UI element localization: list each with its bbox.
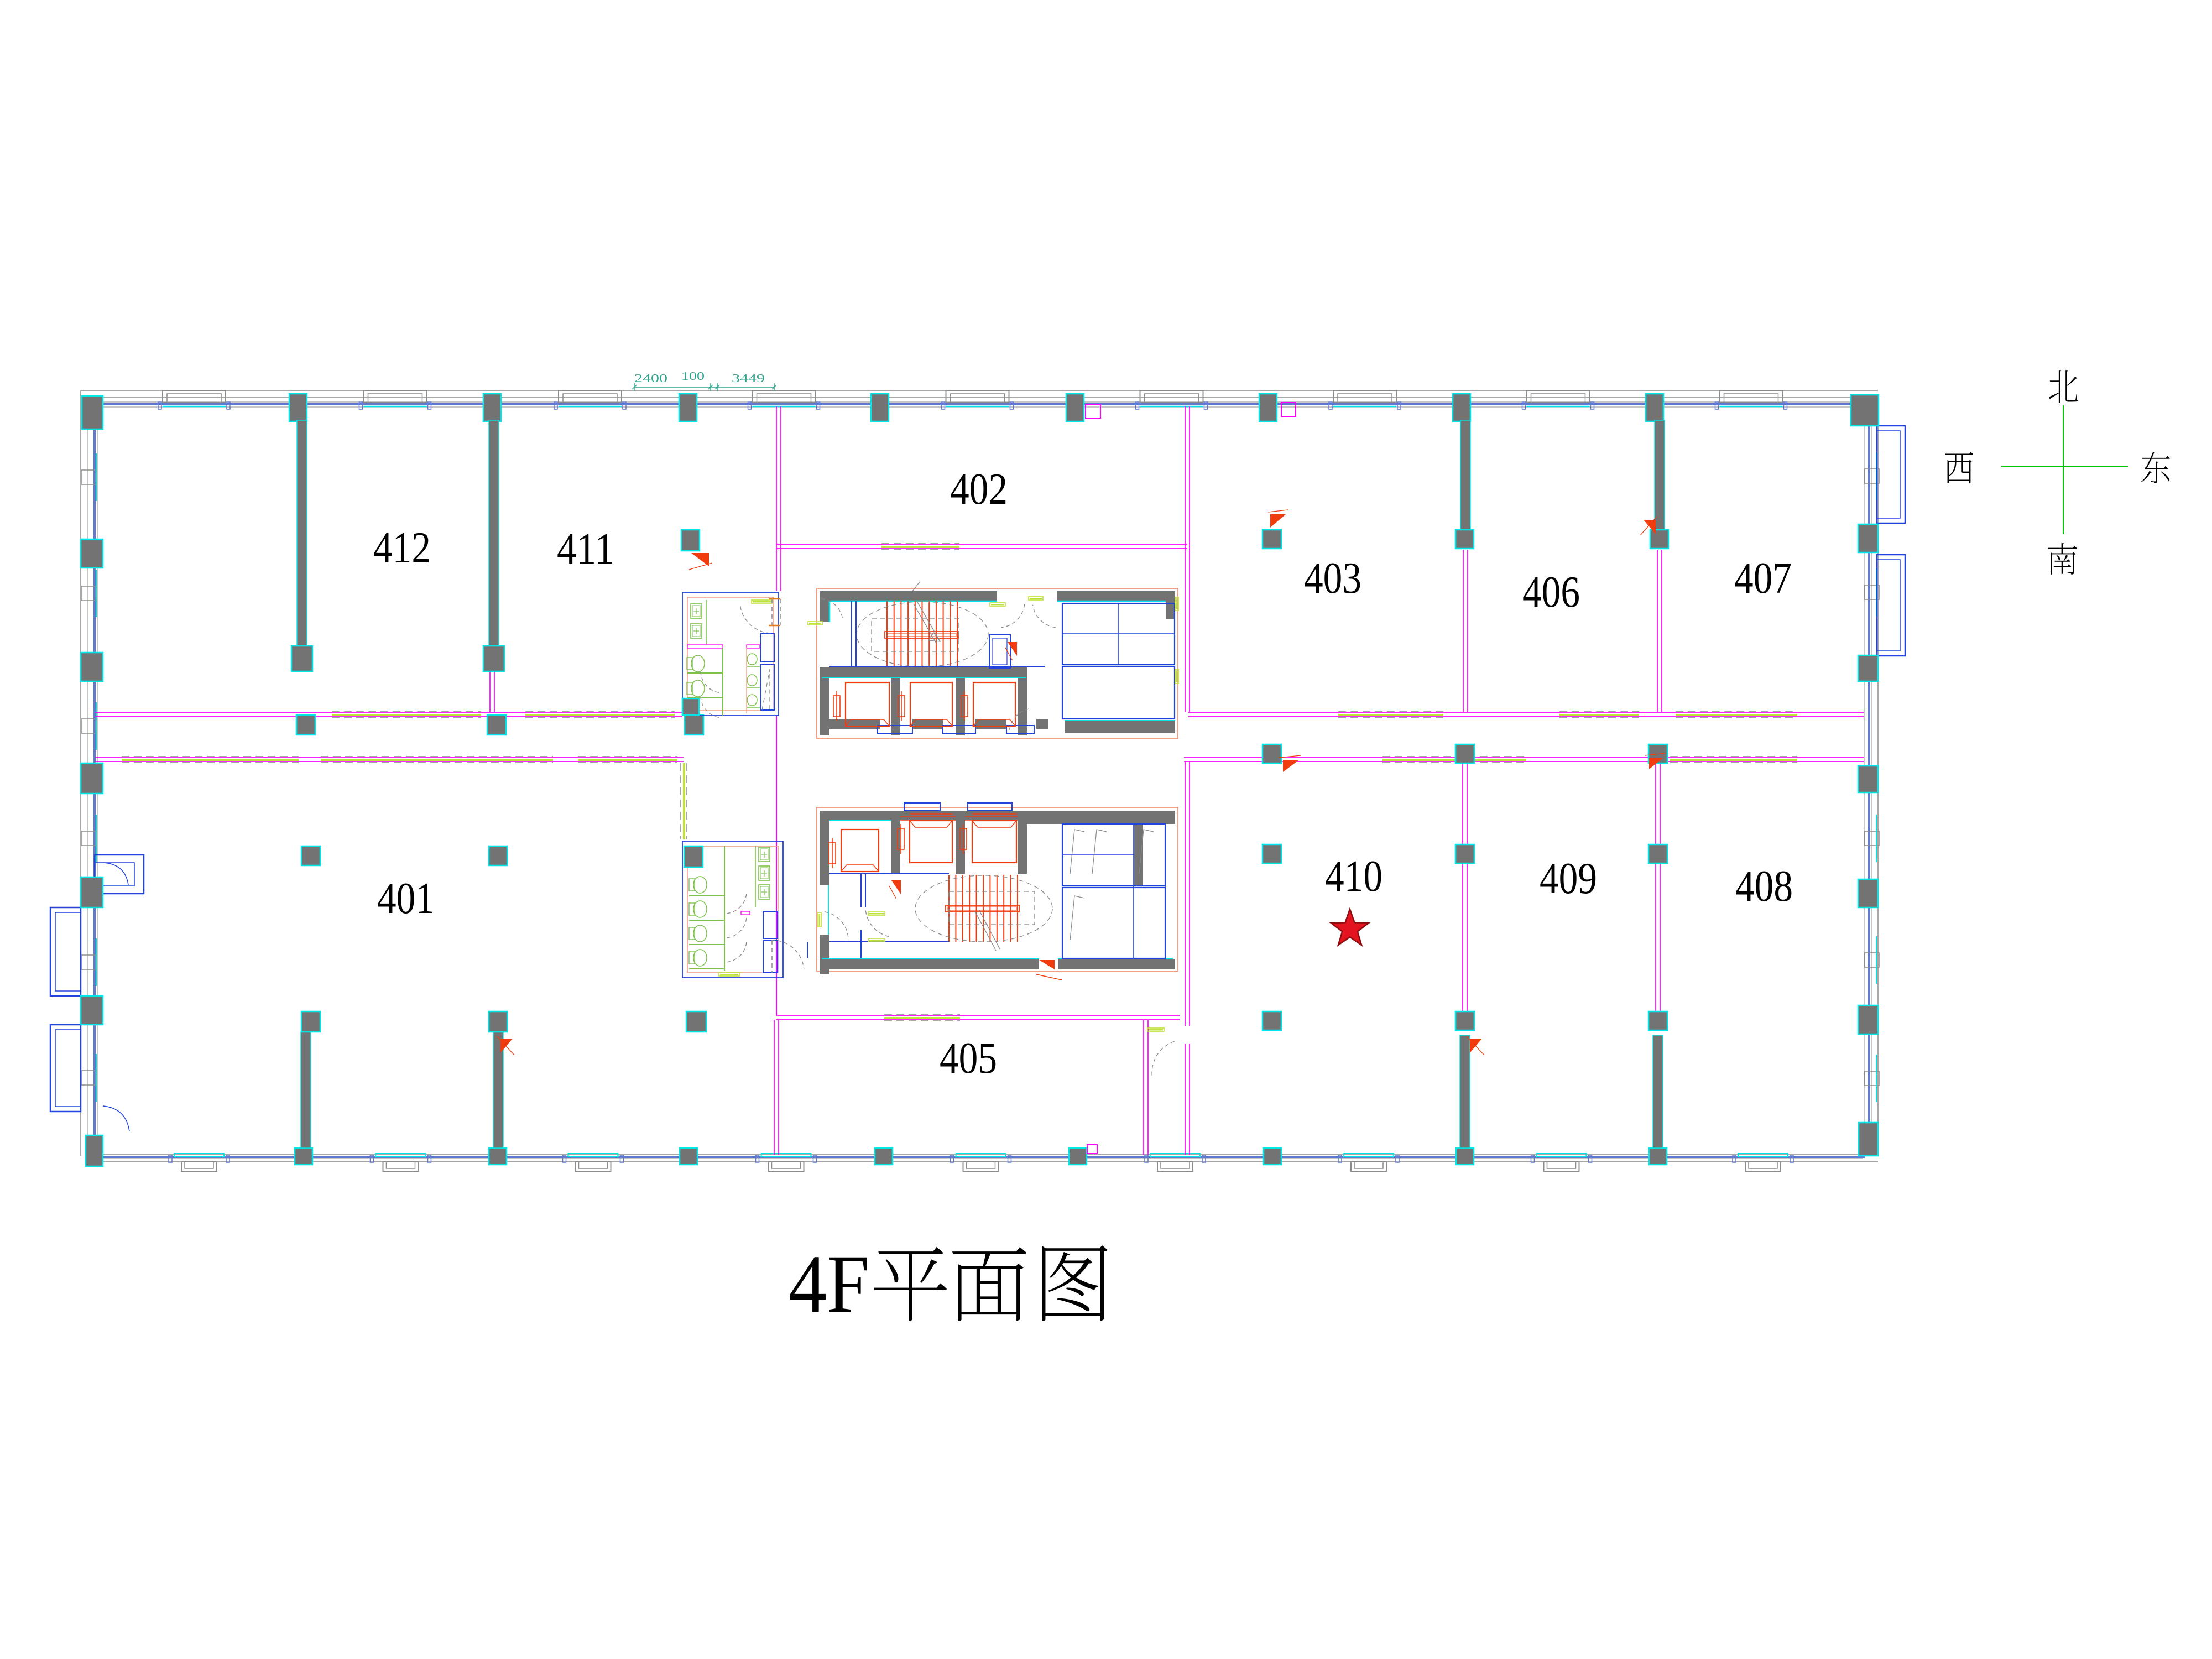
svg-text:405: 405 — [940, 1034, 997, 1083]
svg-text:401: 401 — [377, 874, 435, 923]
svg-text:412: 412 — [373, 524, 431, 572]
svg-text:4F: 4F — [789, 1238, 869, 1330]
svg-text:403: 403 — [1304, 554, 1361, 603]
svg-text:402: 402 — [950, 465, 1008, 514]
svg-text:100: 100 — [681, 369, 705, 383]
svg-text:2400: 2400 — [634, 372, 667, 385]
svg-text:409: 409 — [1540, 854, 1597, 903]
svg-text:407: 407 — [1734, 554, 1792, 603]
svg-text:3449: 3449 — [732, 372, 765, 385]
svg-text:410: 410 — [1325, 852, 1383, 901]
svg-text:406: 406 — [1522, 568, 1580, 617]
svg-text:411: 411 — [557, 525, 614, 573]
svg-text:408: 408 — [1735, 862, 1793, 911]
